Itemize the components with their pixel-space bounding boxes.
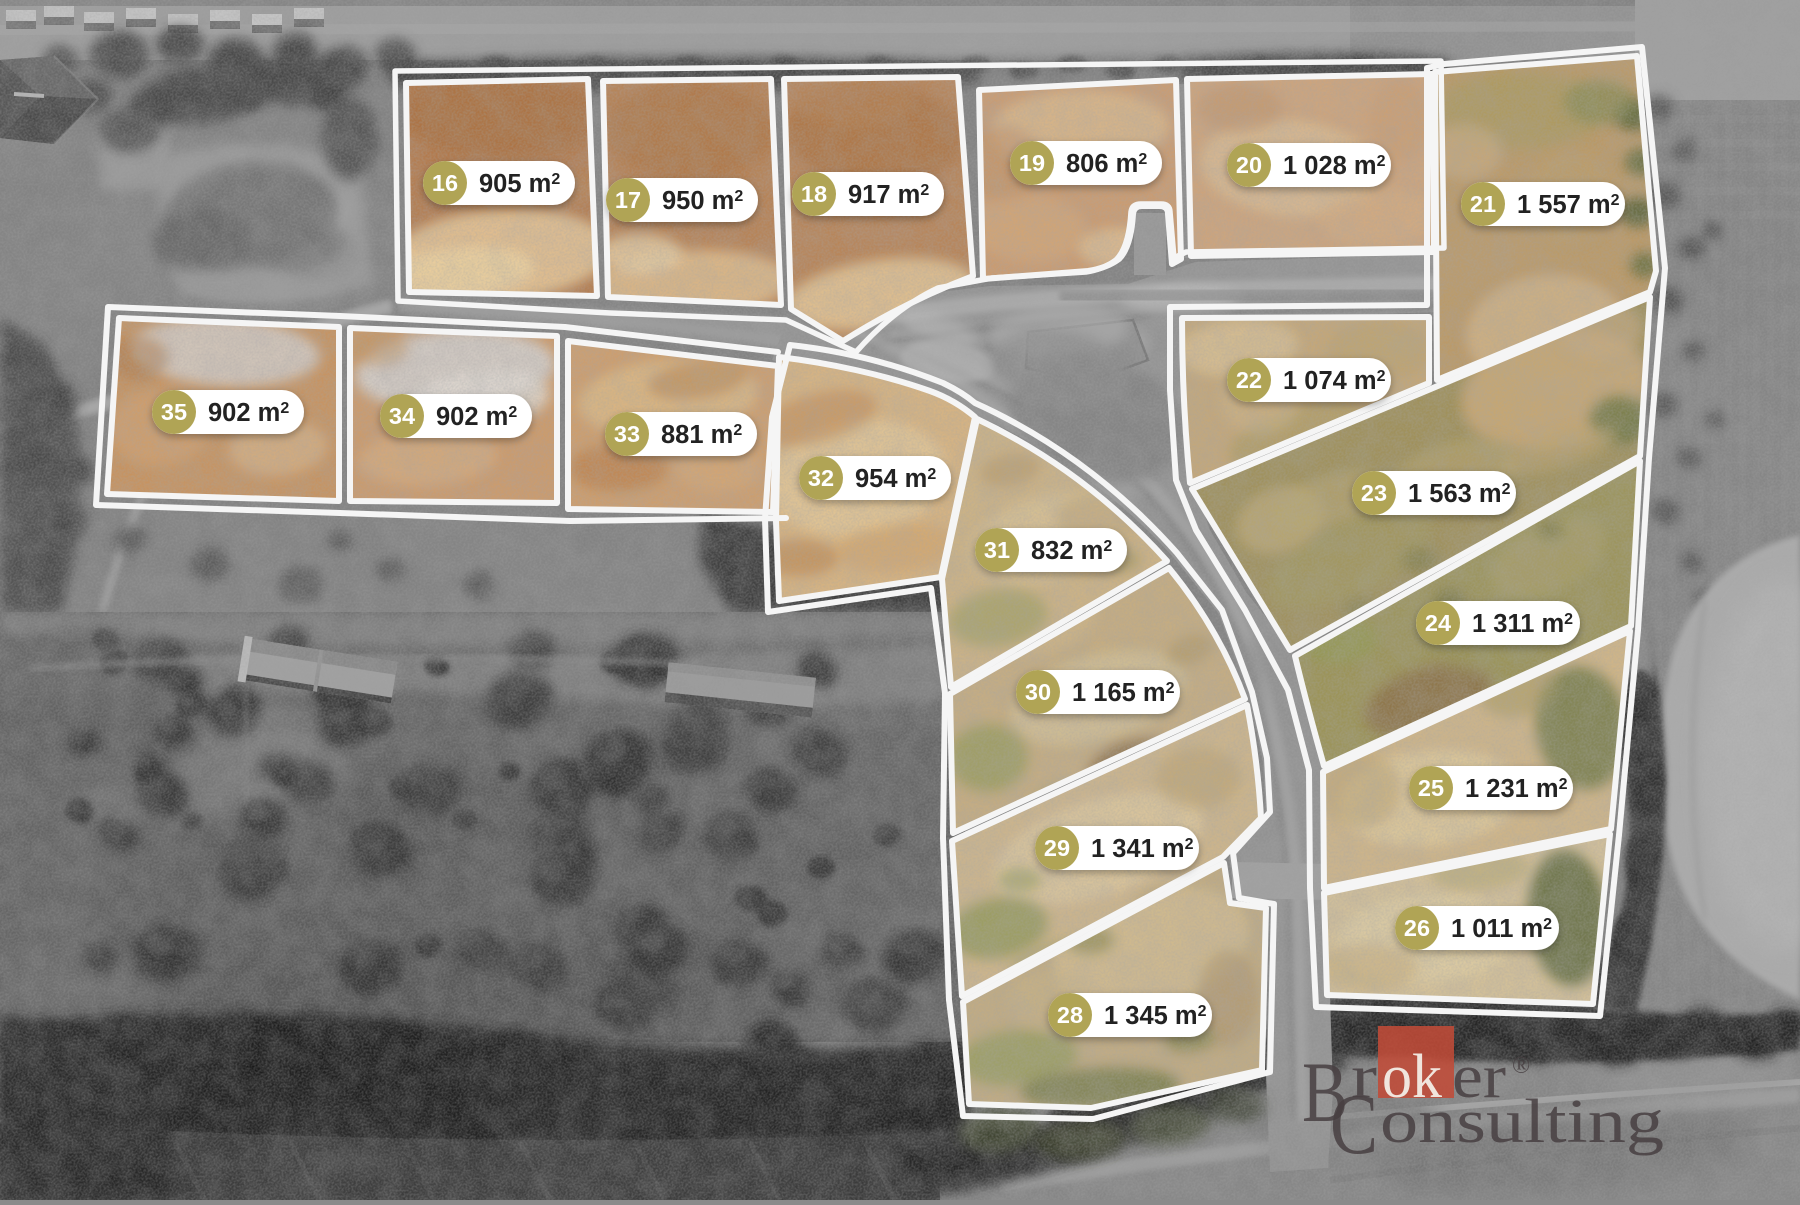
svg-text:1 341 m2: 1 341 m2 — [1091, 835, 1194, 863]
svg-text:1 074 m2: 1 074 m2 — [1283, 367, 1386, 395]
svg-text:20: 20 — [1236, 152, 1262, 178]
svg-text:1 011 m2: 1 011 m2 — [1451, 915, 1552, 943]
svg-text:905 m2: 905 m2 — [479, 170, 560, 198]
svg-text:1 563 m2: 1 563 m2 — [1408, 480, 1511, 508]
svg-text:21: 21 — [1470, 191, 1496, 217]
svg-text:17: 17 — [615, 187, 641, 213]
svg-text:902 m2: 902 m2 — [436, 403, 517, 431]
svg-text:25: 25 — [1418, 775, 1444, 801]
svg-text:832 m2: 832 m2 — [1031, 537, 1112, 565]
svg-text:28: 28 — [1057, 1002, 1083, 1028]
svg-text:®: ® — [1512, 1053, 1530, 1079]
svg-text:917 m2: 917 m2 — [848, 181, 929, 209]
svg-text:18: 18 — [801, 181, 827, 207]
svg-text:24: 24 — [1425, 610, 1451, 636]
svg-text:1 557 m2: 1 557 m2 — [1517, 191, 1620, 219]
svg-text:902 m2: 902 m2 — [208, 399, 289, 427]
svg-text:19: 19 — [1019, 150, 1045, 176]
svg-text:35: 35 — [161, 399, 187, 425]
svg-text:806 m2: 806 m2 — [1066, 150, 1147, 178]
svg-text:1 165 m2: 1 165 m2 — [1072, 679, 1175, 707]
svg-text:16: 16 — [432, 170, 458, 196]
svg-text:950 m2: 950 m2 — [662, 187, 743, 215]
svg-text:32: 32 — [808, 465, 834, 491]
svg-text:1 345 m2: 1 345 m2 — [1104, 1002, 1207, 1030]
svg-text:1 028 m2: 1 028 m2 — [1283, 152, 1386, 180]
svg-text:C: C — [1330, 1076, 1378, 1172]
svg-text:29: 29 — [1044, 835, 1070, 861]
svg-text:954 m2: 954 m2 — [855, 465, 936, 493]
svg-text:31: 31 — [984, 537, 1010, 563]
svg-text:881 m2: 881 m2 — [661, 421, 742, 449]
svg-text:onsulting: onsulting — [1380, 1088, 1664, 1156]
svg-text:30: 30 — [1025, 679, 1051, 705]
svg-text:22: 22 — [1236, 367, 1262, 393]
svg-text:1 231 m2: 1 231 m2 — [1465, 775, 1568, 803]
svg-text:23: 23 — [1361, 480, 1387, 506]
svg-text:26: 26 — [1404, 915, 1430, 941]
svg-text:1 311 m2: 1 311 m2 — [1472, 610, 1573, 638]
svg-text:33: 33 — [614, 421, 640, 447]
svg-text:34: 34 — [389, 403, 415, 429]
